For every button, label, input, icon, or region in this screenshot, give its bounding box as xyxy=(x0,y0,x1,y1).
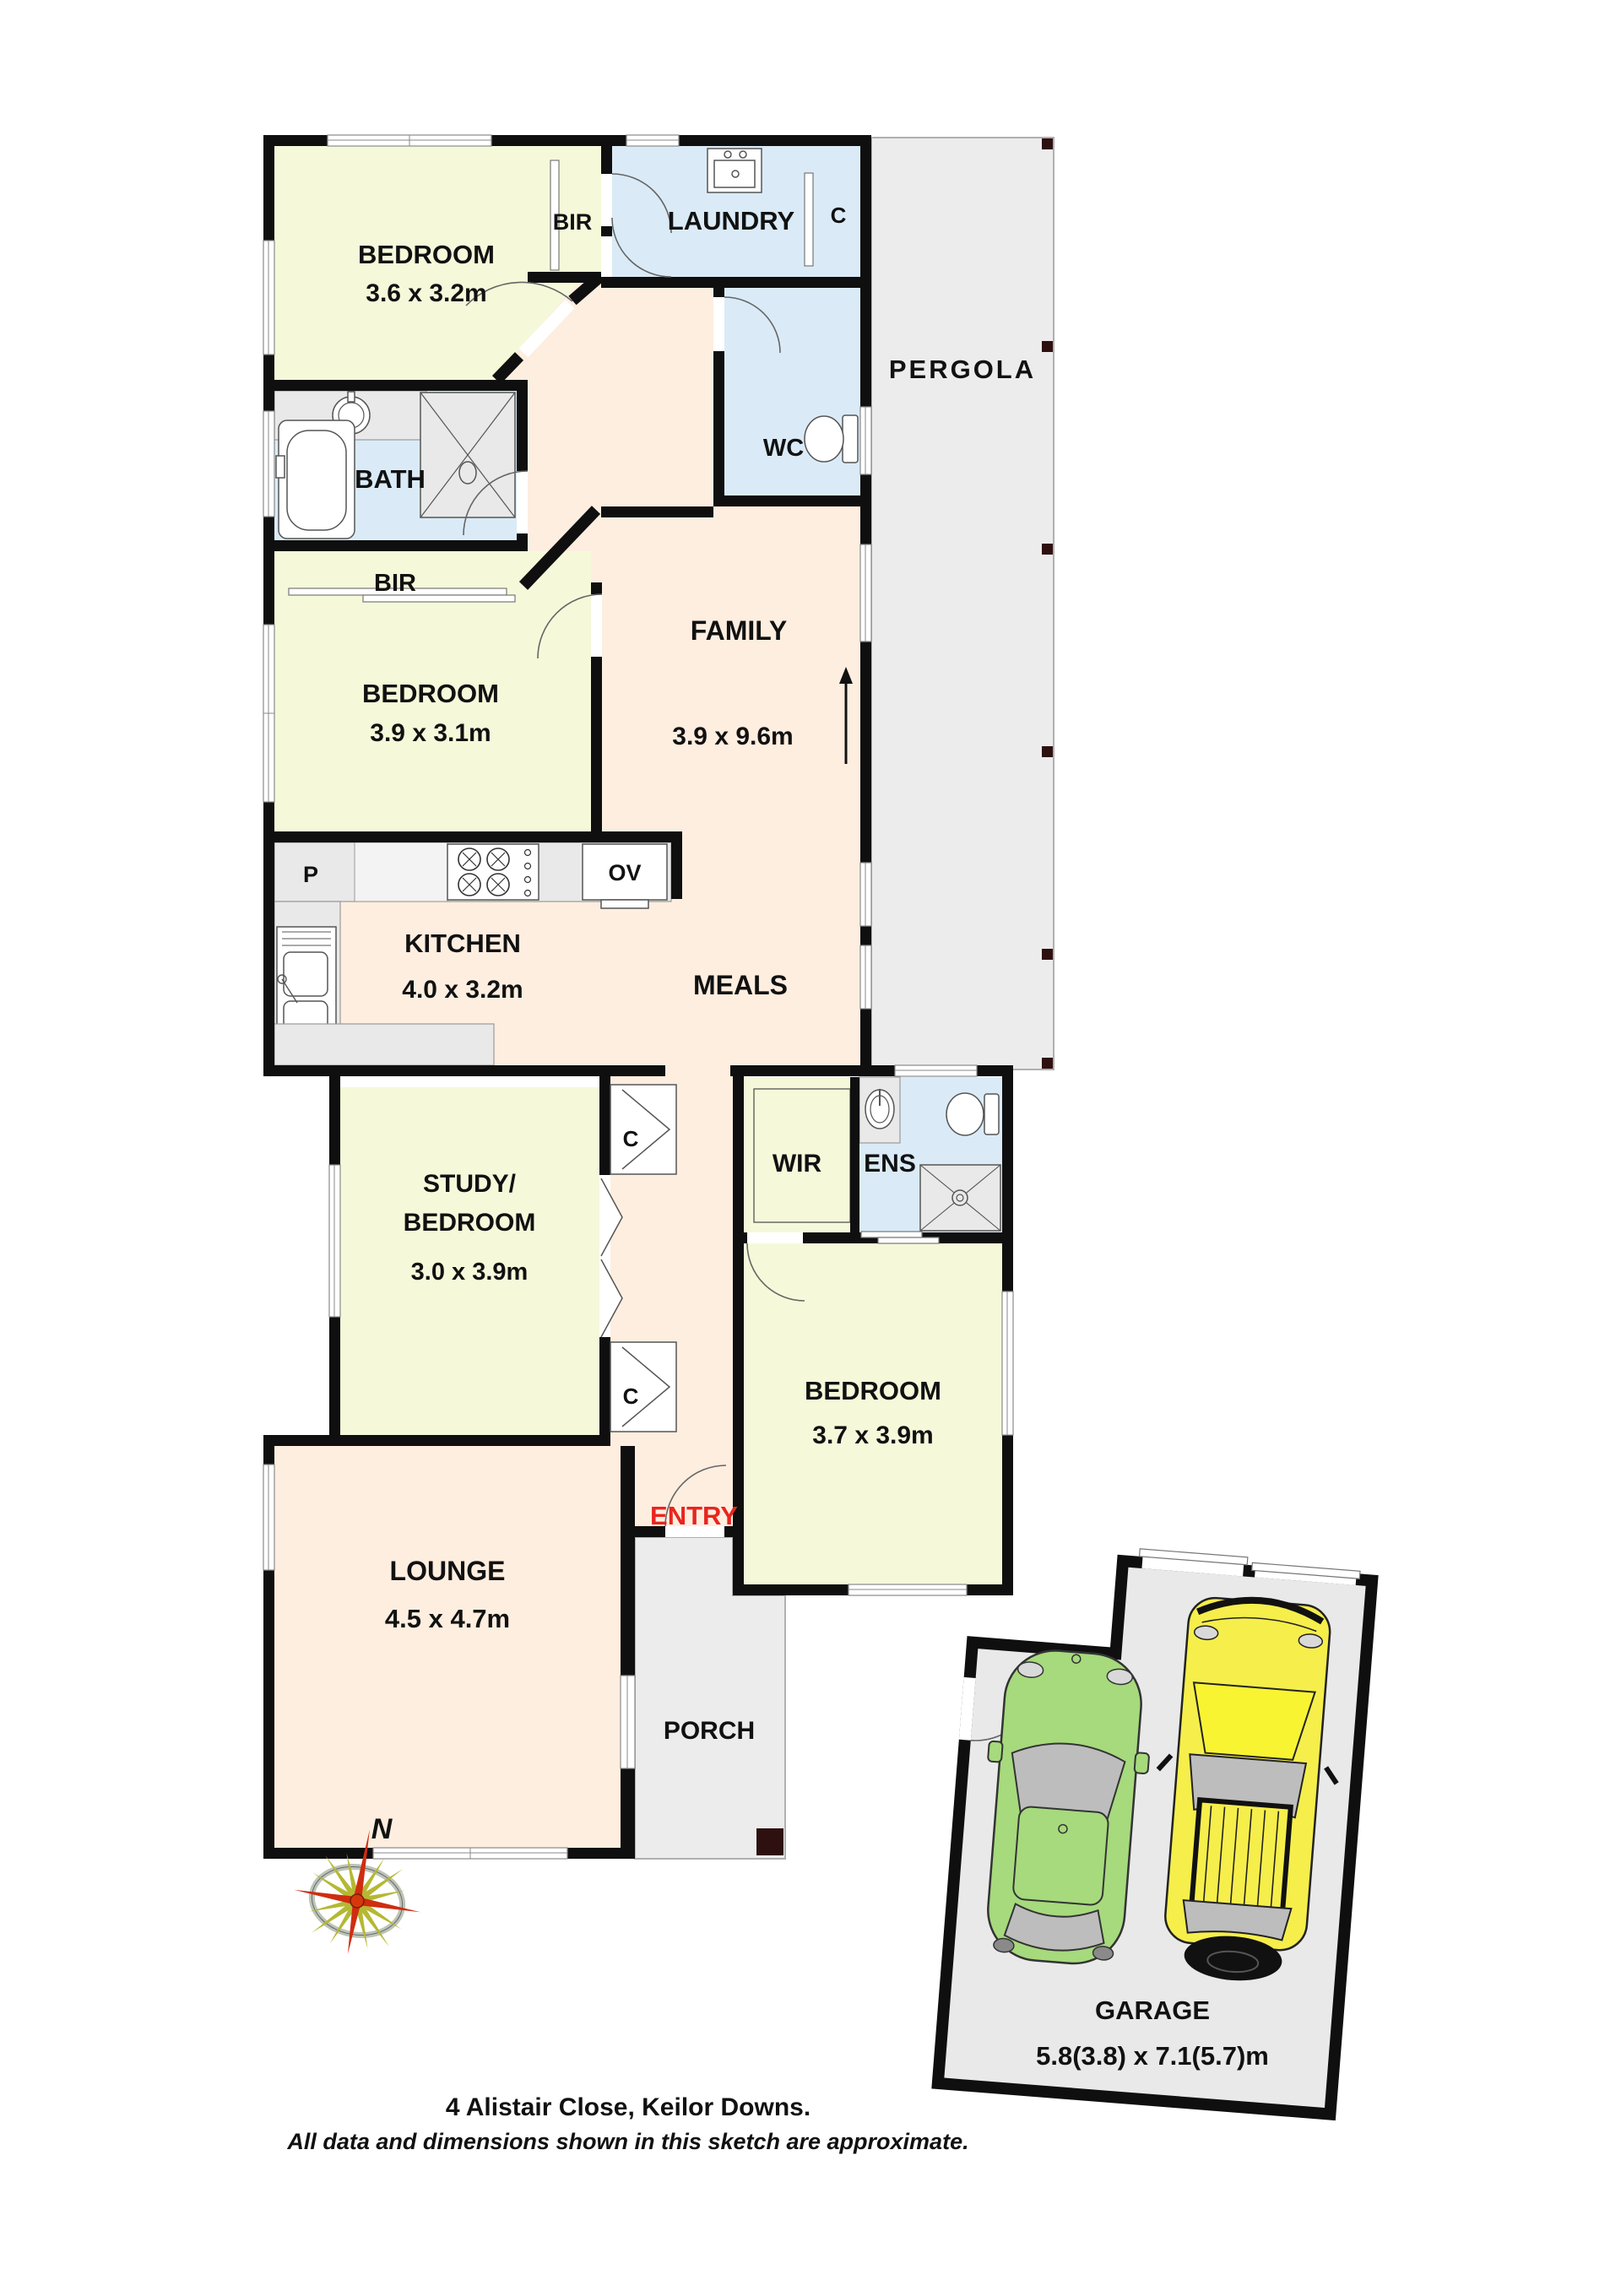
ens-label: ENS xyxy=(864,1150,916,1178)
bedroom3-label: BEDROOM xyxy=(805,1376,941,1405)
pergola-post xyxy=(1042,949,1053,960)
bedroom3-floor xyxy=(744,1243,1002,1584)
pergola-deck xyxy=(871,138,1054,1069)
wc-label: WC xyxy=(763,435,804,462)
window xyxy=(860,863,871,926)
hall-cupboard-bottom-label: C xyxy=(623,1384,639,1409)
footer: 4 Alistair Close, Keilor Downs. All data… xyxy=(286,2093,968,2154)
wc-toilet-icon xyxy=(805,415,858,463)
family-dims: 3.9 x 9.6m xyxy=(672,723,793,750)
wc-floor xyxy=(724,288,860,495)
pergola-label: PERGOLA xyxy=(889,355,1036,384)
window xyxy=(373,1848,567,1859)
kitchen-counter-bottom xyxy=(274,1024,494,1065)
window xyxy=(895,1065,977,1076)
footer-disclaimer: All data and dimensions shown in this sk… xyxy=(286,2129,968,2154)
pergola-post xyxy=(1042,1058,1053,1069)
window xyxy=(329,1165,340,1317)
window xyxy=(848,1584,967,1595)
window xyxy=(1002,1291,1013,1435)
window xyxy=(621,1676,635,1768)
meals-label: MEALS xyxy=(693,970,788,1000)
pergola-post xyxy=(1042,746,1053,757)
bedroom1-dims: 3.6 x 3.2m xyxy=(366,279,486,307)
laundry-closet-label: C xyxy=(831,203,847,228)
wir-label: WIR xyxy=(773,1150,822,1178)
compass-north-label: N xyxy=(371,1813,393,1845)
floorplan-page: N BEDROOM 3.6 x 3.2m BIR LAUNDRY C WC BA… xyxy=(0,0,1621,2292)
garage-block xyxy=(931,1535,1379,2120)
ens-toilet-icon xyxy=(946,1093,999,1135)
laundry-closet-door xyxy=(805,173,813,266)
study-label-1: STUDY/ xyxy=(423,1170,517,1198)
pergola-area xyxy=(871,138,1054,1069)
lounge-dims: 4.5 x 4.7m xyxy=(385,1604,510,1633)
window xyxy=(860,407,871,474)
lounge-floor xyxy=(274,1446,621,1848)
bedroom1-label: BEDROOM xyxy=(358,240,495,269)
kitchen-dims: 4.0 x 3.2m xyxy=(402,976,523,1004)
window xyxy=(328,135,491,146)
bedroom2-floor xyxy=(274,601,591,831)
bath-shower-icon xyxy=(420,393,515,517)
garage-dims: 5.8(3.8) x 7.1(5.7)m xyxy=(1036,2041,1269,2071)
family-label: FAMILY xyxy=(691,615,787,646)
window xyxy=(263,241,274,355)
pantry-label: P xyxy=(303,862,318,887)
bir1-label: BIR xyxy=(553,209,593,235)
pergola-post xyxy=(1042,341,1053,352)
bath-label: BATH xyxy=(355,464,426,494)
hall-cupboard-top xyxy=(610,1085,676,1174)
pergola-post xyxy=(1042,544,1053,555)
bedroom2-label: BEDROOM xyxy=(362,679,499,708)
porch-post xyxy=(756,1828,783,1855)
oven-label: OV xyxy=(608,860,641,885)
floorplan-canvas: N BEDROOM 3.6 x 3.2m BIR LAUNDRY C WC BA… xyxy=(0,0,1621,2292)
kitchen-label: KITCHEN xyxy=(404,929,521,958)
laundry-label: LAUNDRY xyxy=(668,206,795,236)
hall-cupboard-top-label: C xyxy=(623,1126,639,1151)
window xyxy=(263,625,274,802)
window xyxy=(860,544,871,642)
pergola-post xyxy=(1042,138,1053,149)
window xyxy=(860,945,871,1009)
lounge-label: LOUNGE xyxy=(390,1556,506,1586)
bathtub-icon xyxy=(276,420,355,539)
bedroom3-dims: 3.7 x 3.9m xyxy=(812,1421,933,1449)
footer-address: 4 Alistair Close, Keilor Downs. xyxy=(446,2093,810,2121)
study-label-2: BEDROOM xyxy=(404,1209,536,1237)
ens-vanity-icon xyxy=(859,1077,900,1143)
window xyxy=(626,135,679,146)
window xyxy=(263,411,274,517)
laundry-sink-icon xyxy=(707,149,762,192)
ens-shower-icon xyxy=(920,1165,1000,1231)
porch-label: PORCH xyxy=(664,1717,755,1745)
bir2-label: BIR xyxy=(374,570,416,597)
entry-label: ENTRY xyxy=(650,1501,738,1530)
bedroom2-dims: 3.9 x 3.1m xyxy=(370,719,491,747)
garage-label: GARAGE xyxy=(1095,1995,1210,2025)
window xyxy=(263,1465,274,1570)
hall-opening xyxy=(667,1065,729,1076)
hall-cupboard-bottom xyxy=(610,1342,676,1432)
study-dims: 3.0 x 3.9m xyxy=(411,1259,529,1286)
stove-icon xyxy=(447,844,539,900)
